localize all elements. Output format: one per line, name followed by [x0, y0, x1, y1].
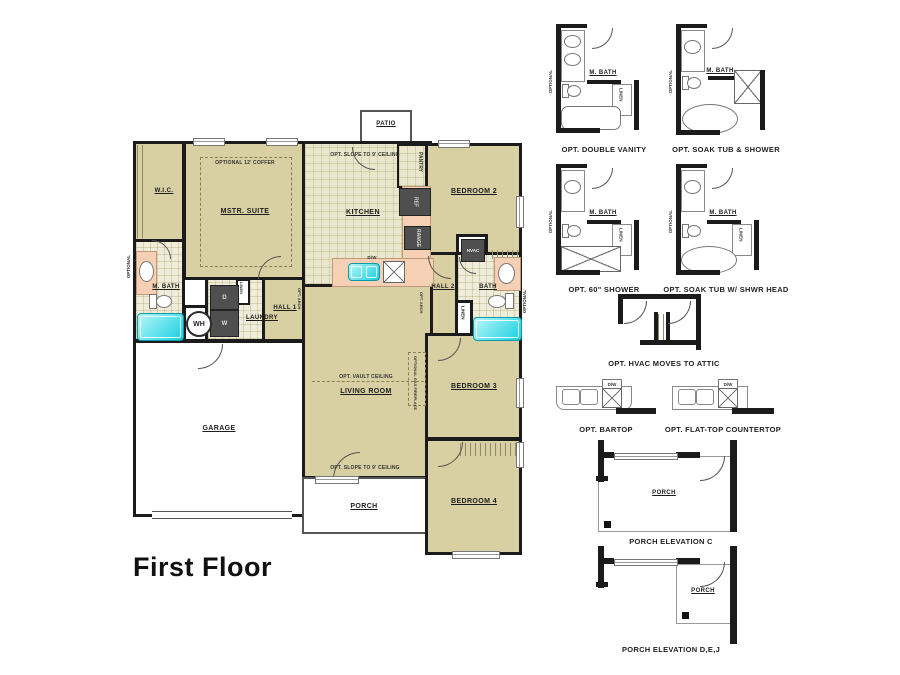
porch-label: PORCH: [350, 503, 377, 510]
option-caption: PORCH ELEVATION C: [576, 537, 766, 546]
linen-label: LINEN: [738, 228, 743, 242]
porch-label: PORCH: [652, 490, 676, 496]
master-suite-label: MSTR. SUITE: [221, 208, 270, 215]
water-heater: WH: [186, 311, 212, 337]
dishwasher: [383, 261, 405, 283]
mbath-label: M. BATH: [706, 68, 733, 74]
kitchen-label: KITCHEN: [346, 209, 380, 216]
door-arc: [712, 28, 733, 49]
dishwasher: [602, 388, 622, 408]
sink: [564, 35, 581, 48]
bath-sink: [498, 263, 515, 284]
dryer: D: [210, 285, 239, 310]
window: [193, 138, 225, 146]
washer: W: [210, 310, 239, 337]
wall: [618, 294, 696, 299]
ref-label: REF: [413, 197, 418, 207]
linen-label: LINEN: [618, 228, 623, 242]
opt-soak-tub-shower: M. BATH OPTIONAL OPT. SOAK TUB & SHOWER: [668, 22, 784, 154]
sink-basin: [351, 266, 362, 278]
wall: [760, 70, 765, 130]
wall: [587, 80, 621, 84]
sink: [580, 389, 598, 405]
optional-label: OPTIONAL: [549, 210, 554, 233]
plan-title: First Floor: [133, 552, 272, 583]
wall: [676, 270, 720, 275]
door-arc: [592, 168, 613, 189]
mbath-tub: [137, 313, 184, 341]
toilet-bowl: [567, 85, 581, 97]
garage-door: [152, 511, 292, 519]
window: [266, 138, 298, 146]
wall: [598, 558, 614, 564]
toilet-tank: [505, 293, 514, 309]
wall: [561, 164, 587, 168]
shower: [734, 70, 762, 104]
wh-label: WH: [193, 321, 205, 328]
porch-post: [604, 521, 611, 528]
door-arc: [668, 301, 691, 324]
garage-label: GARAGE: [202, 425, 235, 432]
closet-shelving: [658, 314, 666, 340]
kitchen-sink: [348, 263, 380, 281]
tub: [561, 106, 621, 130]
mbath-label: M. BATH: [709, 210, 736, 216]
window: [516, 442, 524, 468]
opt-soak-tub-shwr-head: M. BATH LINEN OPTIONAL OPT. SOAK TUB W/ …: [668, 162, 784, 294]
linen-label: LINEN: [460, 306, 465, 320]
wall: [707, 220, 741, 224]
mbath-label: M. BATH: [589, 210, 616, 216]
tub-basin: [140, 316, 181, 338]
wall: [681, 24, 707, 28]
wic-label: W.I.C.: [155, 188, 174, 194]
dishwasher: [718, 388, 738, 408]
sink-basin: [366, 266, 377, 278]
door-arc: [592, 28, 613, 49]
wall: [556, 24, 561, 130]
porch-post: [682, 612, 689, 619]
dishwasher-label: D/W: [367, 256, 376, 261]
refrigerator: REF: [399, 188, 431, 216]
opt-double-vanity: M. BATH LINEN OPTIONAL OPT. DOUBLE VANIT…: [548, 22, 660, 154]
optional-label: OPTIONAL: [523, 290, 528, 313]
porch-label: PORCH: [691, 588, 715, 594]
wall: [561, 24, 587, 28]
optional-label: OPTIONAL: [549, 70, 554, 93]
opt-hvac-attic: OPT. HVAC MOVES TO ATTIC: [604, 294, 724, 368]
kitchen-slope-note: OPT. SLOPE TO 9' CEILING: [330, 153, 400, 158]
sink: [564, 53, 581, 66]
opt-bartop: D/W OPT. BARTOP: [556, 376, 656, 434]
window: [614, 453, 678, 460]
door-arc: [624, 301, 647, 324]
bedroom4-label: BEDROOM 4: [451, 498, 497, 505]
laundry-label: LAUNDRY: [246, 315, 278, 321]
hall2-label: HALL 2: [431, 284, 454, 290]
tub-basin: [476, 320, 519, 338]
hall1-label: HALL 1: [273, 305, 296, 311]
opt-arch-label: OPT. ARCH: [419, 292, 423, 313]
window: [614, 559, 678, 566]
shower-60: [561, 246, 621, 272]
dryer-label: D: [222, 295, 226, 301]
bedroom3-label: BEDROOM 3: [451, 383, 497, 390]
wall: [676, 452, 700, 458]
window: [315, 476, 359, 484]
wall: [730, 546, 737, 644]
coffer-note: OPTIONAL 12' COFFER: [215, 161, 275, 166]
bath-label: BATH: [479, 284, 497, 290]
optional-label: OPTIONAL: [669, 70, 674, 93]
wall: [708, 76, 734, 80]
patio-label: PATIO: [376, 121, 395, 127]
toilet-bowl: [567, 225, 581, 237]
option-caption: OPT. SOAK TUB W/ SHWR HEAD: [648, 285, 804, 294]
option-caption: OPT. FLAT-TOP COUNTERTOP: [648, 425, 798, 434]
sink: [562, 389, 580, 405]
sink: [696, 389, 714, 405]
opt-arch-label: OPT. ARCH: [297, 288, 301, 309]
closet-shelving: [460, 443, 517, 456]
mbath-label: M. BATH: [589, 70, 616, 76]
optional-label: OPTIONAL: [669, 210, 674, 233]
wall: [676, 24, 681, 130]
door-arc: [712, 168, 733, 189]
sink: [684, 40, 701, 54]
bedroom2-label: BEDROOM 2: [451, 188, 497, 195]
wall: [616, 408, 656, 414]
wall: [598, 452, 614, 458]
sink: [684, 180, 701, 194]
sink: [678, 389, 696, 405]
living-room-label: LIVING ROOM: [340, 388, 391, 395]
wall: [730, 440, 737, 532]
wall: [556, 128, 600, 133]
wic-shelving: [137, 145, 147, 238]
option-caption: OPT. SOAK TUB & SHOWER: [648, 145, 804, 154]
window: [516, 196, 524, 228]
opt-flat-top-countertop: D/W OPT. FLAT-TOP COUNTERTOP: [668, 376, 778, 434]
sink: [564, 180, 581, 194]
wall: [556, 270, 600, 275]
wall: [587, 220, 621, 224]
toilet-bowl: [687, 77, 701, 89]
wall: [676, 130, 720, 135]
hvac-label: HVAC: [467, 248, 479, 253]
optional-label: OPTIONAL: [127, 255, 132, 278]
range: RANGE: [404, 226, 431, 250]
window: [452, 551, 500, 559]
window: [516, 378, 524, 408]
option-caption: PORCH ELEVATION D,E,J: [576, 645, 766, 654]
wall: [596, 476, 608, 481]
range-label: RANGE: [415, 229, 420, 247]
wall: [596, 582, 608, 587]
linen-label: LINEN: [239, 282, 243, 294]
wall: [640, 340, 696, 345]
wall: [681, 164, 707, 168]
wall: [732, 408, 774, 414]
porch-elevation-c: PORCH PORCH ELEVATION C: [596, 440, 746, 546]
wall: [696, 294, 701, 350]
wall: [676, 558, 700, 564]
mbath-sink: [139, 261, 154, 282]
washer-label: W: [222, 321, 228, 327]
wall: [676, 164, 681, 270]
linen-label: LINEN: [618, 88, 623, 102]
vault-note: OPT. VAULT CEILING: [339, 375, 393, 380]
porch-elevation-dej: PORCH PORCH ELEVATION D,E,J: [596, 546, 746, 654]
opt-60-shower: M. BATH LINEN OPTIONAL OPT. 60" SHOWER: [548, 162, 660, 294]
option-caption: OPT. HVAC MOVES TO ATTIC: [584, 359, 744, 368]
wall: [754, 220, 759, 270]
fireplace-note: OPTIONAL GAS FIREPLACE: [413, 356, 417, 410]
living-slope-note: OPT. SLOPE TO 9' CEILING: [330, 466, 400, 471]
pantry-label: PANTRY: [417, 152, 422, 172]
mbath-toilet-bowl: [156, 295, 172, 308]
bath-tub: [473, 317, 522, 341]
wall: [634, 80, 639, 130]
wall: [618, 294, 623, 324]
mbath-label: M. BATH: [152, 284, 179, 290]
toilet-bowl: [488, 295, 506, 308]
toilet-bowl: [687, 225, 701, 237]
wall: [634, 220, 639, 270]
floor-plan-sheet: PATIO W.I.C. OPTIONAL 12' COFFER MSTR. S…: [0, 0, 900, 675]
wall: [654, 312, 658, 342]
window: [438, 140, 470, 148]
wall: [556, 164, 561, 270]
